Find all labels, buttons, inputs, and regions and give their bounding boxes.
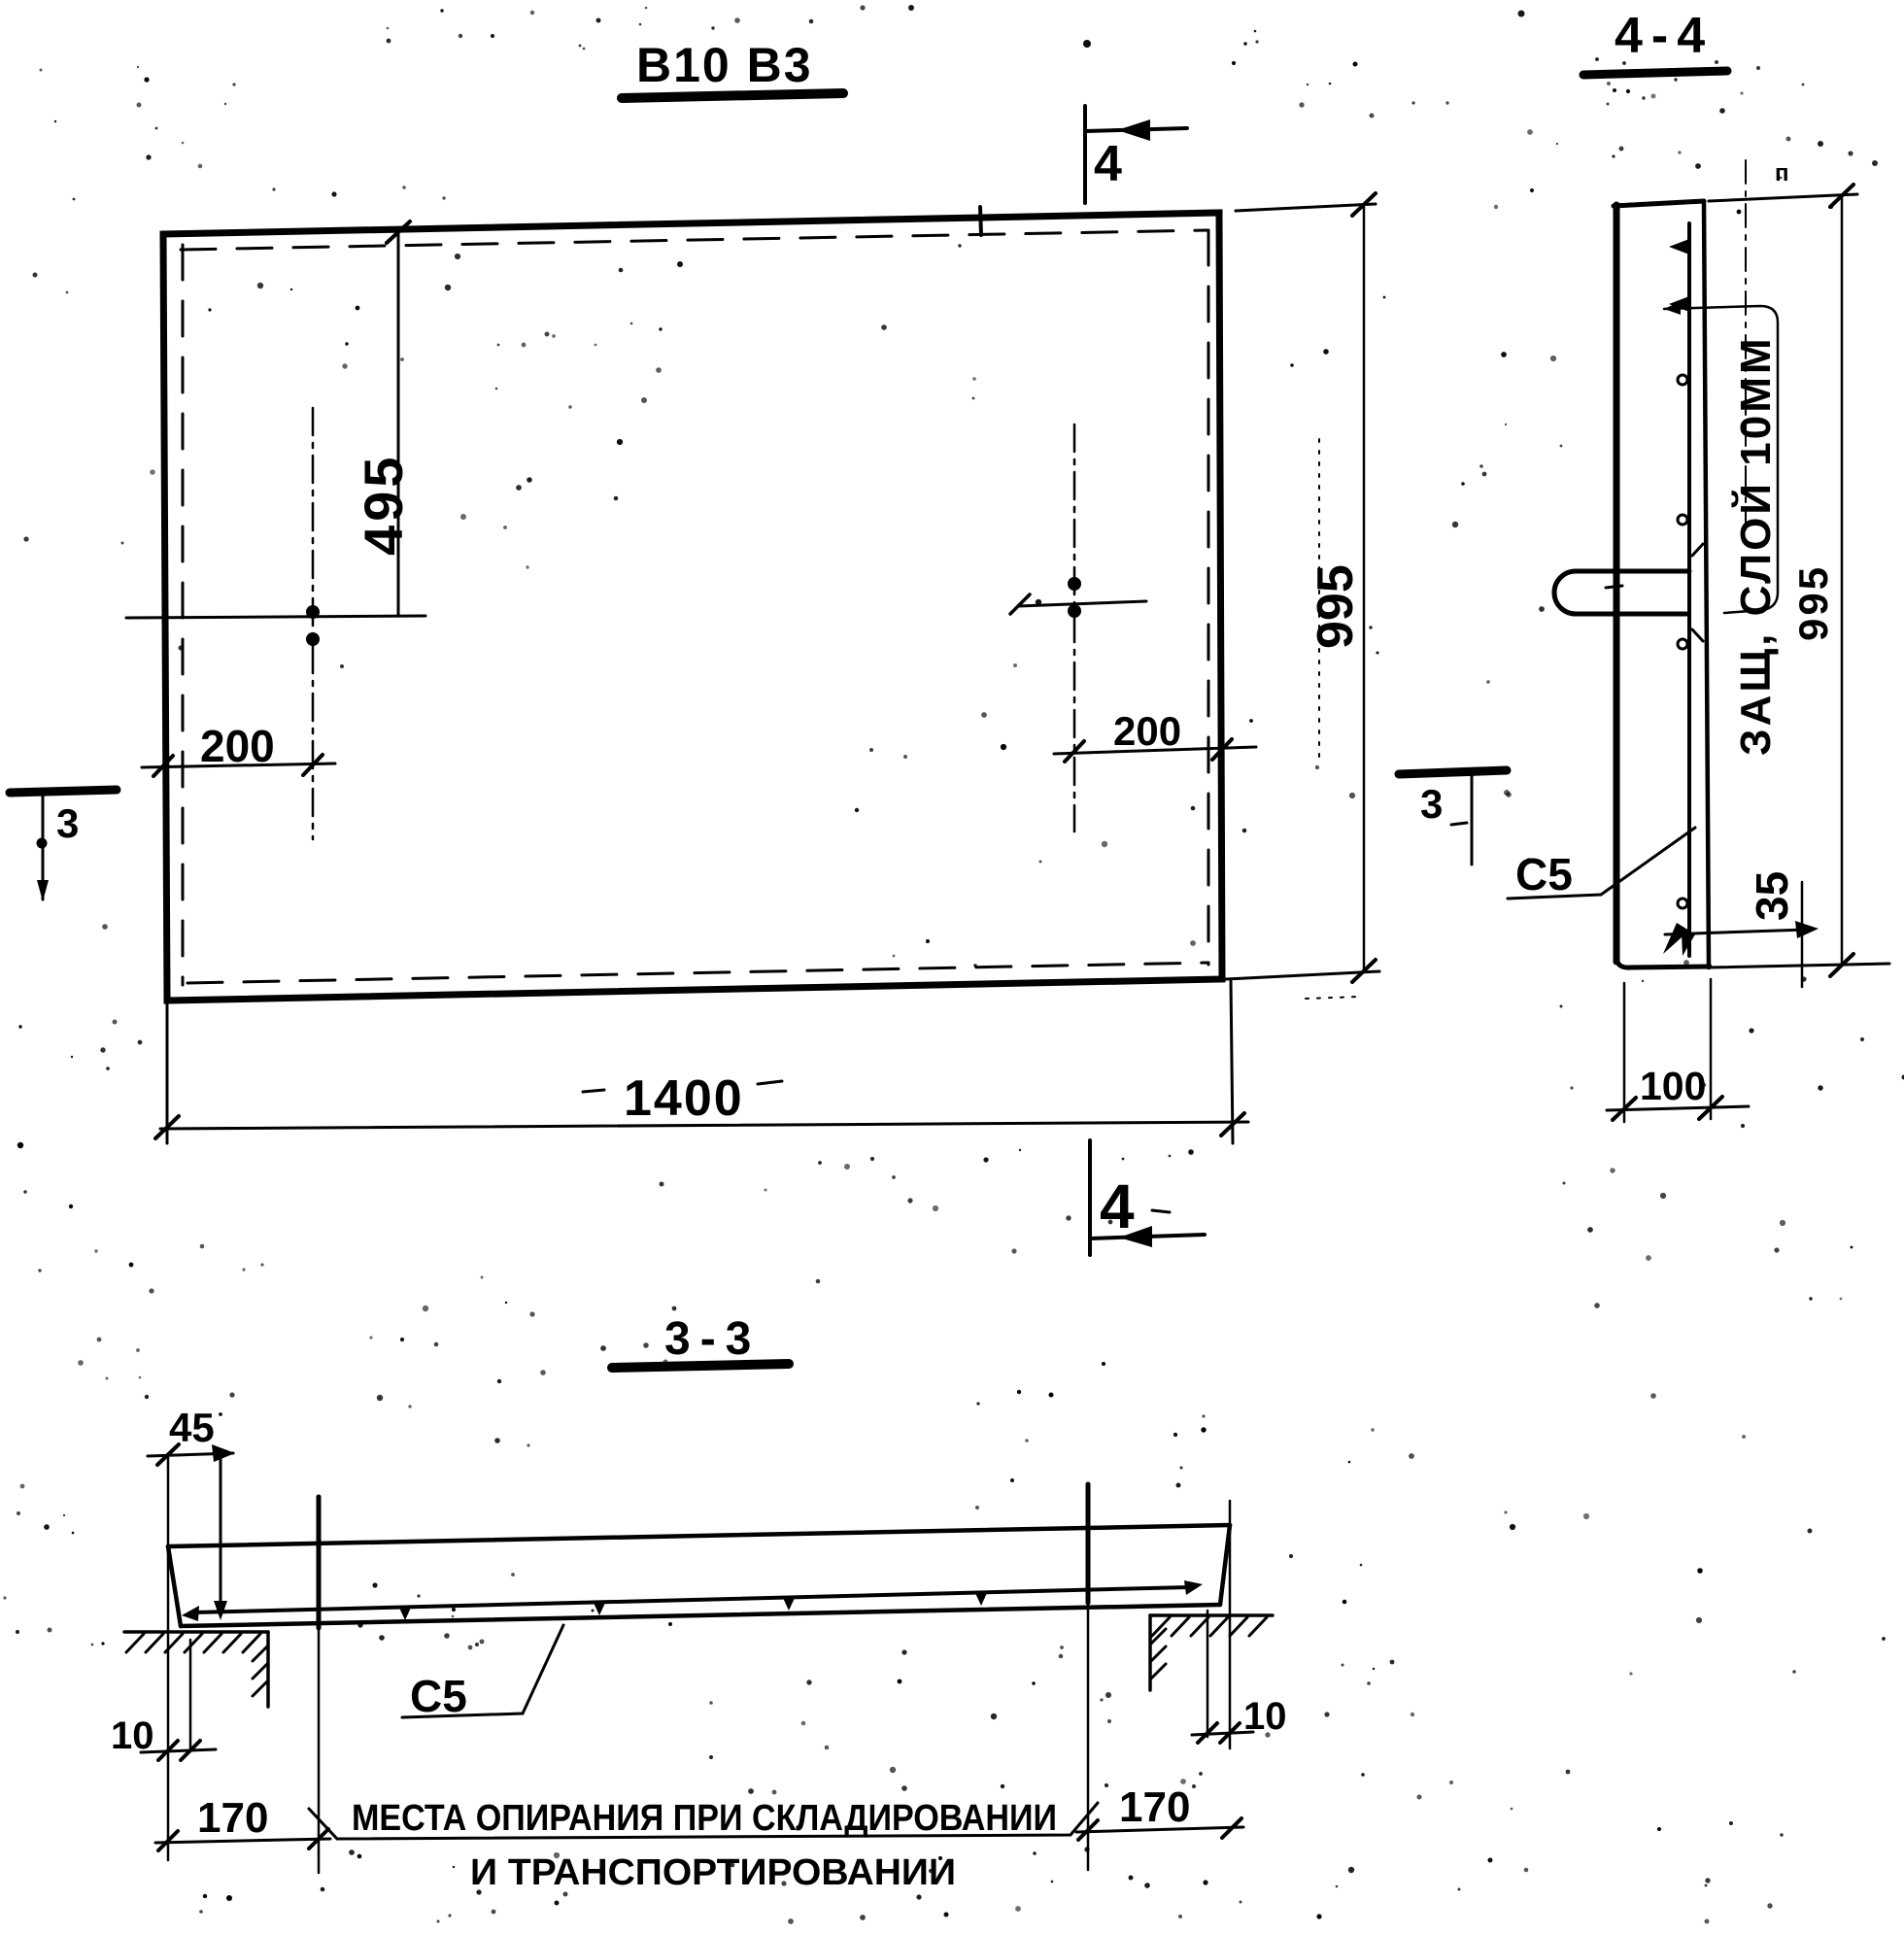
svg-text:4-4: 4-4 (1615, 8, 1714, 64)
svg-text:200: 200 (1113, 708, 1181, 754)
svg-text:С5: С5 (1515, 849, 1573, 899)
svg-text:495: 495 (353, 454, 414, 556)
svg-text:С5: С5 (410, 1671, 467, 1721)
svg-text:И ТРАНСПОРТИРОВАНИИ: И ТРАНСПОРТИРОВАНИИ (470, 1852, 956, 1893)
svg-text:10: 10 (1243, 1695, 1287, 1738)
svg-text:170: 170 (1119, 1783, 1190, 1831)
svg-text:ЗАЩ, СЛОЙ 10ММ: ЗАЩ, СЛОЙ 10ММ (1730, 336, 1780, 757)
svg-text:4: 4 (1100, 1171, 1135, 1241)
svg-text:3-3: 3-3 (664, 1313, 761, 1365)
svg-text:170: 170 (197, 1794, 268, 1842)
svg-text:1400: 1400 (624, 1070, 744, 1127)
svg-text:В10 В3: В10 В3 (636, 38, 813, 92)
svg-text:45: 45 (169, 1405, 215, 1450)
svg-text:МЕСТА ОПИРАНИЯ ПРИ СКЛАДИРОВАН: МЕСТА ОПИРАНИЯ ПРИ СКЛАДИРОВАНИИ (352, 1798, 1057, 1839)
svg-text:995: 995 (1790, 564, 1836, 641)
svg-text:4: 4 (1094, 136, 1122, 192)
svg-text:3: 3 (56, 800, 79, 846)
svg-text:995: 995 (1308, 564, 1364, 649)
svg-text:10: 10 (111, 1714, 154, 1757)
svg-text:п: п (1775, 160, 1789, 187)
svg-text:200: 200 (200, 721, 275, 771)
svg-text:3: 3 (1420, 781, 1443, 827)
svg-text:100: 100 (1640, 1064, 1706, 1108)
svg-text:35: 35 (1747, 871, 1797, 921)
